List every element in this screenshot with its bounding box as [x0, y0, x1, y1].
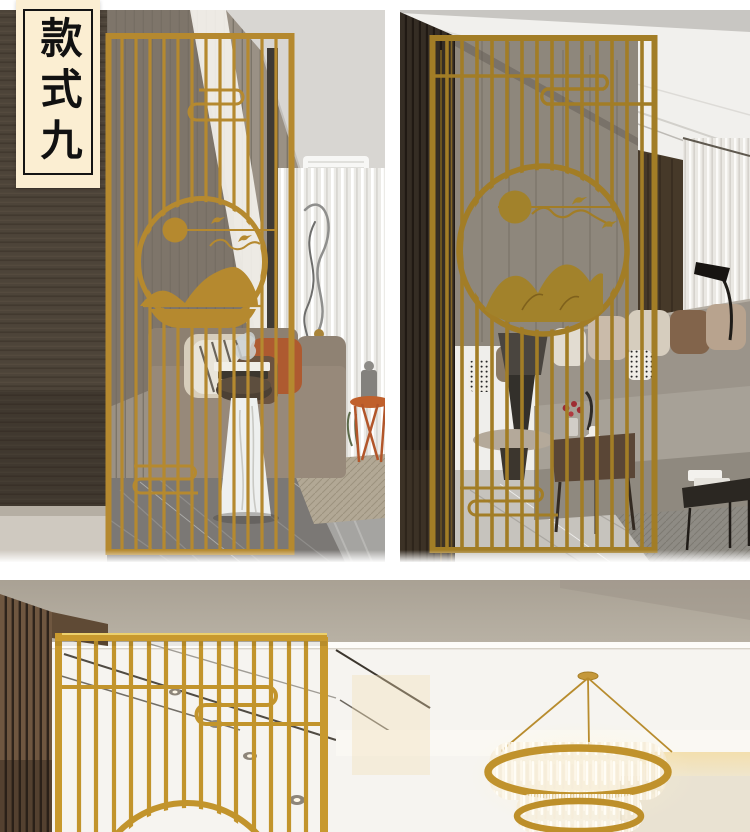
checkered-pillow	[627, 350, 653, 380]
square-table	[551, 433, 635, 482]
photo-top-right	[400, 10, 750, 562]
screen-left-post	[55, 633, 62, 832]
style-badge-frame: 款式九	[23, 9, 93, 175]
sun-disc	[163, 218, 188, 243]
product-showcase: 款式九	[0, 0, 750, 832]
screen-right-post	[320, 637, 328, 832]
warm-glow	[352, 675, 430, 775]
style-badge-text: 款式九	[37, 16, 79, 169]
hallway-scene	[0, 580, 750, 832]
right-room-scene	[400, 10, 750, 562]
sun-disc	[499, 191, 532, 224]
photo-bottom	[0, 580, 750, 832]
style-badge: 款式九	[16, 0, 100, 188]
checkered-pillow	[468, 360, 494, 392]
